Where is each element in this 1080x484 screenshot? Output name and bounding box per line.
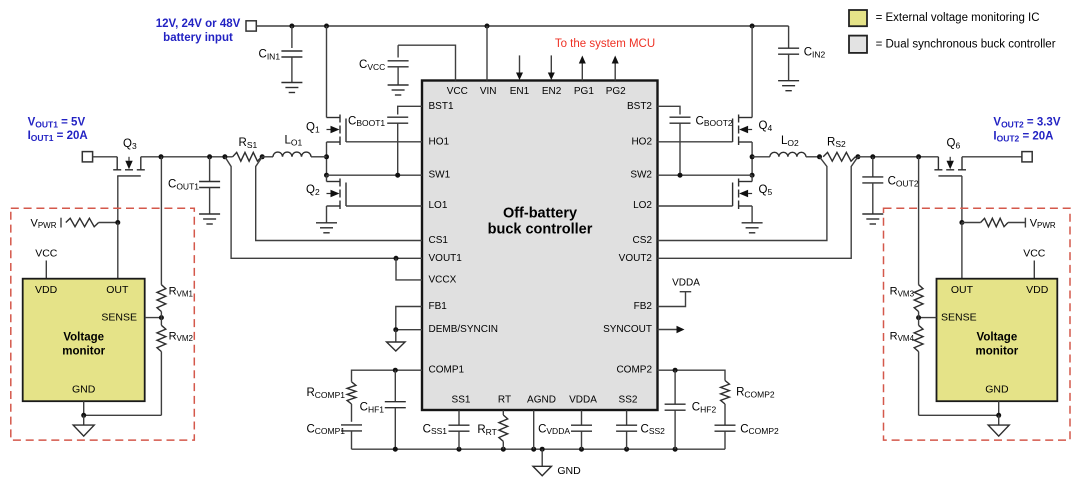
svg-text:Voltage: Voltage: [63, 331, 104, 343]
svg-text:CBOOT2: CBOOT2: [696, 115, 733, 128]
svg-text:COMP2: COMP2: [616, 365, 652, 376]
svg-text:LO1: LO1: [285, 134, 303, 147]
svg-text:COMP1: COMP1: [429, 365, 465, 376]
svg-text:PG2: PG2: [606, 86, 626, 97]
svg-text:LO2: LO2: [781, 135, 799, 148]
svg-text:VDD: VDD: [1026, 284, 1049, 296]
svg-text:Q6: Q6: [947, 138, 961, 151]
svg-text:12V, 24V or 48V: 12V, 24V or 48V: [156, 18, 241, 30]
svg-text:Q5: Q5: [759, 184, 773, 197]
svg-text:SENSE: SENSE: [101, 312, 137, 324]
svg-text:CCOMP2: CCOMP2: [740, 423, 779, 436]
svg-text:CS2: CS2: [633, 235, 653, 246]
svg-text:SS2: SS2: [619, 395, 638, 406]
svg-text:monitor: monitor: [975, 346, 1018, 358]
svg-text:Q2: Q2: [306, 184, 320, 197]
svg-text:BST1: BST1: [429, 101, 454, 112]
svg-text:VOUT1 = 5V: VOUT1 = 5V: [28, 116, 86, 129]
svg-text:Q1: Q1: [306, 122, 320, 135]
svg-text:GND: GND: [72, 383, 96, 395]
svg-text:To the system MCU: To the system MCU: [555, 38, 655, 50]
svg-text:CHF1: CHF1: [360, 402, 385, 415]
svg-text:VIN: VIN: [480, 86, 497, 97]
svg-text:= External voltage monitoring: = External voltage monitoring IC: [876, 12, 1040, 24]
svg-text:Voltage: Voltage: [977, 331, 1018, 343]
svg-text:SYNCOUT: SYNCOUT: [603, 324, 652, 335]
svg-text:CVCC: CVCC: [359, 59, 385, 72]
svg-text:LO2: LO2: [633, 200, 652, 211]
svg-text:Q4: Q4: [759, 120, 773, 133]
svg-text:COUT1: COUT1: [168, 179, 199, 192]
svg-text:VDD: VDD: [35, 284, 58, 296]
svg-text:CCOMP1: CCOMP1: [306, 423, 345, 436]
svg-text:HO1: HO1: [429, 136, 450, 147]
svg-text:HO2: HO2: [631, 136, 652, 147]
svg-text:RS2: RS2: [827, 136, 846, 149]
svg-text:VOUT2: VOUT2: [619, 253, 653, 264]
svg-text:CIN1: CIN1: [259, 49, 281, 62]
svg-text:FB2: FB2: [634, 301, 653, 312]
svg-text:CIN2: CIN2: [804, 47, 826, 60]
svg-text:RS1: RS1: [239, 137, 258, 150]
svg-text:RRT: RRT: [477, 424, 497, 437]
svg-text:VCCX: VCCX: [429, 274, 457, 285]
svg-text:CSS1: CSS1: [423, 423, 448, 436]
svg-text:AGND: AGND: [527, 395, 556, 406]
svg-text:monitor: monitor: [62, 346, 105, 358]
svg-text:Off-battery: Off-battery: [503, 206, 577, 222]
svg-text:GND: GND: [985, 383, 1009, 395]
svg-text:EN2: EN2: [542, 86, 562, 97]
svg-text:LO1: LO1: [429, 200, 448, 211]
svg-text:DEMB/SYNCIN: DEMB/SYNCIN: [429, 324, 498, 335]
svg-text:VOUT2 = 3.3V: VOUT2 = 3.3V: [993, 117, 1060, 130]
svg-text:VCC: VCC: [447, 86, 468, 97]
svg-text:RT: RT: [498, 395, 511, 406]
svg-text:CSS2: CSS2: [641, 423, 666, 436]
svg-text:buck controller: buck controller: [488, 222, 593, 238]
svg-text:CHF2: CHF2: [692, 402, 717, 415]
svg-text:SW2: SW2: [630, 170, 652, 181]
svg-text:BST2: BST2: [627, 101, 652, 112]
svg-text:COUT2: COUT2: [888, 176, 919, 189]
svg-text:FB1: FB1: [429, 301, 448, 312]
svg-text:RCOMP2: RCOMP2: [736, 387, 775, 400]
svg-text:RCOMP1: RCOMP1: [306, 387, 345, 400]
svg-text:SENSE: SENSE: [941, 312, 977, 324]
svg-text:= Dual synchronous buck contro: = Dual synchronous buck controller: [876, 38, 1056, 50]
svg-text:OUT: OUT: [106, 284, 129, 296]
svg-text:OUT: OUT: [951, 284, 974, 296]
svg-text:battery input: battery input: [163, 32, 233, 44]
svg-text:EN1: EN1: [510, 86, 530, 97]
svg-text:IOUT1 = 20A: IOUT1 = 20A: [28, 130, 88, 143]
svg-text:VOUT1: VOUT1: [429, 253, 463, 264]
svg-text:VCC: VCC: [1023, 247, 1046, 259]
svg-text:GND: GND: [557, 465, 581, 477]
svg-text:SW1: SW1: [429, 170, 451, 181]
svg-text:IOUT2 = 20A: IOUT2 = 20A: [993, 131, 1053, 144]
svg-text:VDDA: VDDA: [569, 395, 597, 406]
svg-text:CS1: CS1: [429, 235, 449, 246]
svg-text:PG1: PG1: [574, 86, 594, 97]
svg-text:SS1: SS1: [452, 395, 471, 406]
svg-text:Q3: Q3: [123, 138, 137, 151]
svg-text:VDDA: VDDA: [672, 278, 700, 289]
svg-text:CBOOT1: CBOOT1: [348, 115, 385, 128]
svg-text:CVDDA: CVDDA: [538, 423, 570, 436]
svg-text:VCC: VCC: [35, 247, 58, 259]
